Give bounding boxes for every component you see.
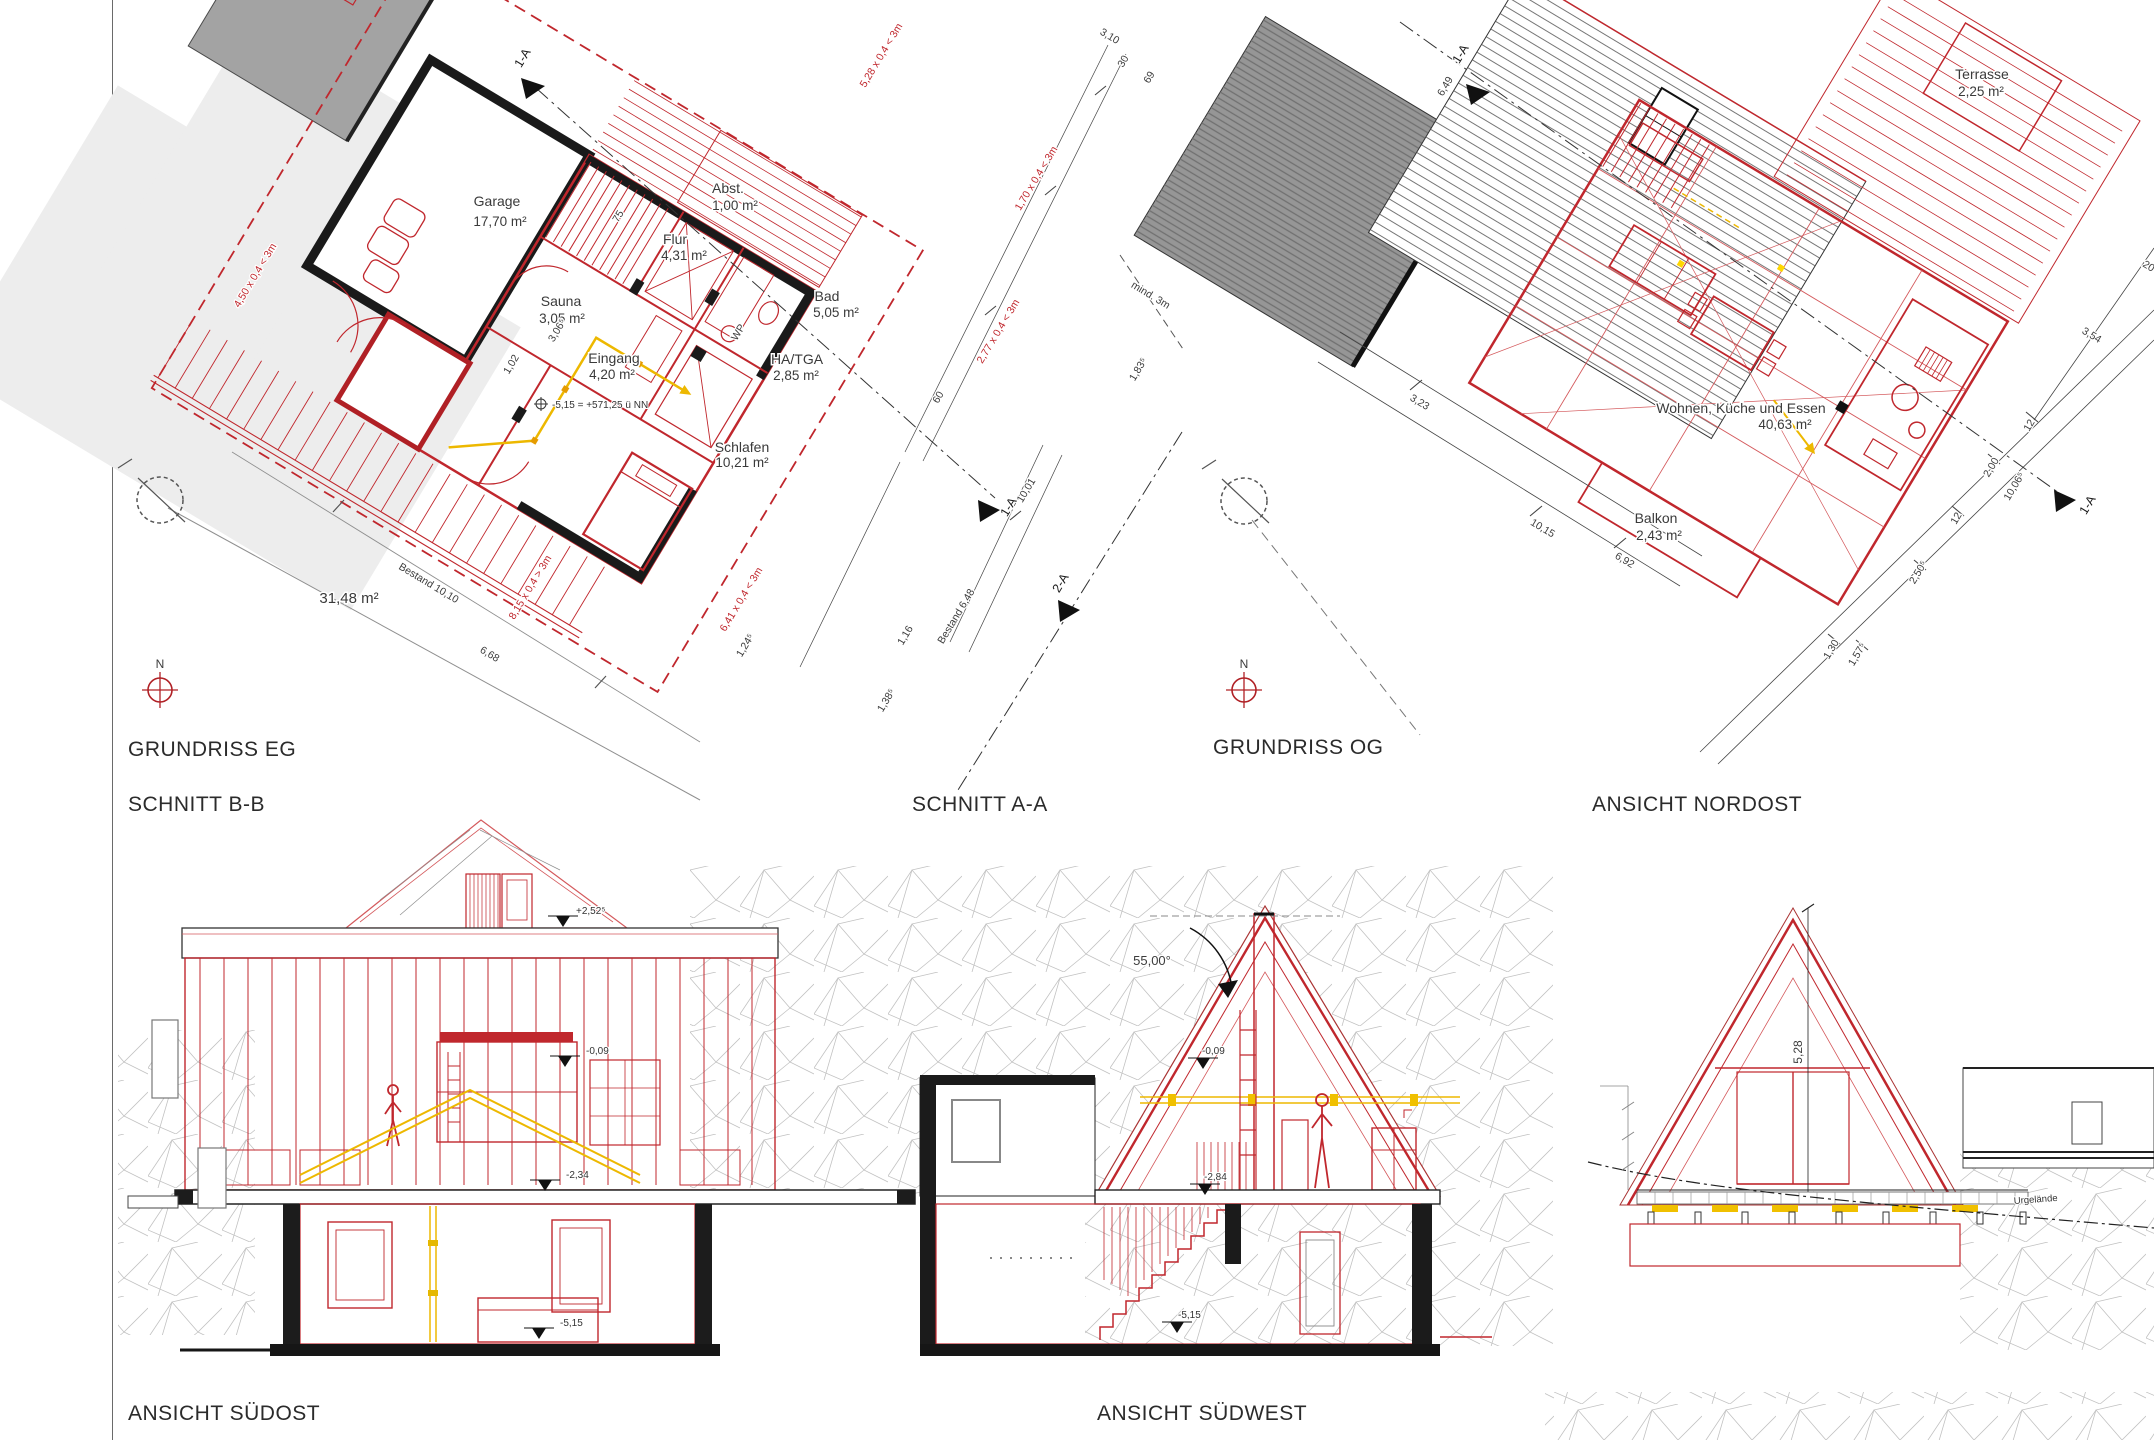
roof-angle-label: 55,00° [1133, 953, 1171, 968]
room-label-garage: Garage [474, 193, 521, 209]
title-ansicht-nordost: ANSICHT NORDOST [1592, 793, 1802, 817]
level-bb-eg: -2,34 [566, 1170, 589, 1181]
dim-30: 30 [1115, 53, 1131, 69]
dim-183: 1,83⁵ [1127, 356, 1150, 383]
dim-250: 2,50⁵ [1907, 559, 1930, 586]
room-area-flur: 4,31 m² [661, 248, 707, 263]
dim-124: 1,24⁵ [734, 632, 757, 659]
title-grundriss-eg: GRUNDRISS EG [128, 738, 296, 762]
dim-60: 60 [930, 389, 946, 405]
room-label-bad: Bad [815, 288, 840, 304]
dim-red-170: 1,70 x 0,4 < 3m [1013, 144, 1061, 213]
marker-2a-eg: 2-A [1050, 570, 1072, 594]
dim-692: 6,92 [1613, 550, 1637, 571]
dim-bestand-648: Bestand 6,48 [935, 587, 977, 646]
room-label-flur: Flur [663, 231, 687, 247]
dim-323: 3,23 [1408, 392, 1432, 413]
room-label-schlafen: Schlafen [715, 439, 769, 455]
room-area-wohnen: 40,63 m² [1758, 417, 1812, 432]
section-marker-1a-right-eg [978, 500, 1000, 522]
level-bb-og: -0,09 [586, 1046, 609, 1057]
room-label-abst: Abst. [712, 180, 744, 196]
dim-116: 1,16 [895, 623, 916, 647]
marker-1a-right-og: 1-A [2077, 492, 2099, 516]
north-arrow-icon [1226, 672, 1262, 708]
level-aa-eg: -2,84 [1204, 1172, 1227, 1183]
title-schnitt-aa: SCHNITT A-A [912, 793, 1048, 817]
level-bb-eaves: +2,52⁵ [576, 906, 605, 917]
level-bb-ug: -5,15 [560, 1318, 583, 1329]
eg-plan: N Garage 17,70 m² Flur 4,31 m² Abst. 1,0… [0, 0, 1185, 800]
section-marker-2a-eg [1058, 600, 1080, 622]
room-label-hatga: HA/TGA [771, 351, 824, 367]
terrain-mesh-right [1960, 1150, 2154, 1350]
room-area-hatga: 2,85 m² [773, 368, 819, 383]
dim-354: 3,54 [2080, 325, 2104, 346]
og-plan: N Terrasse 2,25 m² Wohnen, Küche und Ess… [1134, 0, 2154, 764]
room-area-schlafen: 10,21 m² [715, 455, 769, 470]
dim-130: 1,30 [1821, 637, 1842, 661]
room-area-balkon: 2,43 m² [1636, 528, 1682, 543]
title-schnitt-bb: SCHNITT B-B [128, 793, 265, 817]
room-area-abst: 1,00 m² [712, 198, 758, 213]
room-label-eingang: Eingang [588, 350, 639, 366]
north-label-eg: N [156, 657, 165, 671]
level-annotation-eg: -5,15 = +571,25 ü NN [552, 400, 648, 411]
north-label-og: N [1240, 657, 1249, 671]
level-aa-ug: -5,15 [1178, 1310, 1201, 1321]
dim-138: 1,38⁵ [875, 687, 898, 714]
dim-20: 20 [2140, 258, 2154, 274]
terrain-mesh-center [690, 866, 1553, 1196]
dim-528-height: 5,28 [1791, 1040, 1805, 1064]
dim-310: 3,10 [1098, 26, 1122, 47]
title-ansicht-suedost: ANSICHT SÜDOST [128, 1402, 320, 1426]
level-aa-og: -0,09 [1202, 1046, 1225, 1057]
og-new-roof [1368, 0, 1865, 439]
terrain-mesh-center-low [1085, 1196, 1553, 1346]
room-area-garage: 17,70 m² [473, 214, 527, 229]
dim-102: 1,02 [501, 352, 522, 376]
section-marker-1a-right-og [2054, 490, 2076, 512]
dim-12a: 12 [1948, 510, 1964, 526]
room-label-balkon: Balkon [1635, 510, 1678, 526]
marker-1a-top-eg: 1-A [512, 45, 534, 69]
room-area-bad: 5,05 m² [813, 305, 859, 320]
room-area-eingang: 4,20 m² [589, 367, 635, 382]
dim-69: 69 [1141, 69, 1157, 85]
room-label-terrasse: Terrasse [1955, 66, 2009, 82]
dim-red-641: 6,41 x 0,4 < 3m [718, 565, 766, 634]
dim-wp: WP [729, 322, 748, 343]
tree-icon [1202, 460, 1269, 524]
title-grundriss-og: GRUNDRISS OG [1213, 736, 1384, 760]
room-area-terrasse: 2,25 m² [1958, 84, 2004, 99]
dim-200: 2,00 [1981, 455, 2002, 479]
terrain-mesh-left [118, 1030, 255, 1335]
dim-1001: 10,01 [1015, 476, 1039, 505]
dim-red-528: 5,28 x 0,4 < 3m [858, 21, 906, 90]
dim-1015: 10,15 [1528, 517, 1557, 541]
dim-red-277: 2,77 x 0,4 < 3m [975, 297, 1023, 366]
title-ansicht-suedwest: ANSICHT SÜDWEST [1097, 1402, 1307, 1426]
terrain-mesh-corner [1545, 1392, 2154, 1440]
dim-157: 1,57⁵ [1846, 641, 1869, 668]
level-symbol-icon [534, 397, 548, 411]
north-arrow-icon [142, 672, 178, 708]
dim-668: 6,68 [478, 644, 502, 665]
marker-1a-top-og: 1-A [1450, 41, 1472, 65]
room-label-wohnen: Wohnen, Küche und Essen [1656, 400, 1825, 416]
section-marker-1a-top-eg [521, 78, 545, 99]
dim-1006: 10,06⁵ [2001, 470, 2027, 502]
dim-mind-3m: mind. 3m [1129, 279, 1172, 312]
sheet-linework: N Garage 17,70 m² Flur 4,31 m² Abst. 1,0… [0, 0, 2154, 1440]
drawing-sheet: N Garage 17,70 m² Flur 4,31 m² Abst. 1,0… [0, 0, 2154, 1440]
dim-bestand-1010: Bestand 10,10 [396, 561, 460, 606]
site-area-label: 31,48 m² [319, 590, 378, 607]
room-label-sauna: Sauna [541, 293, 582, 309]
